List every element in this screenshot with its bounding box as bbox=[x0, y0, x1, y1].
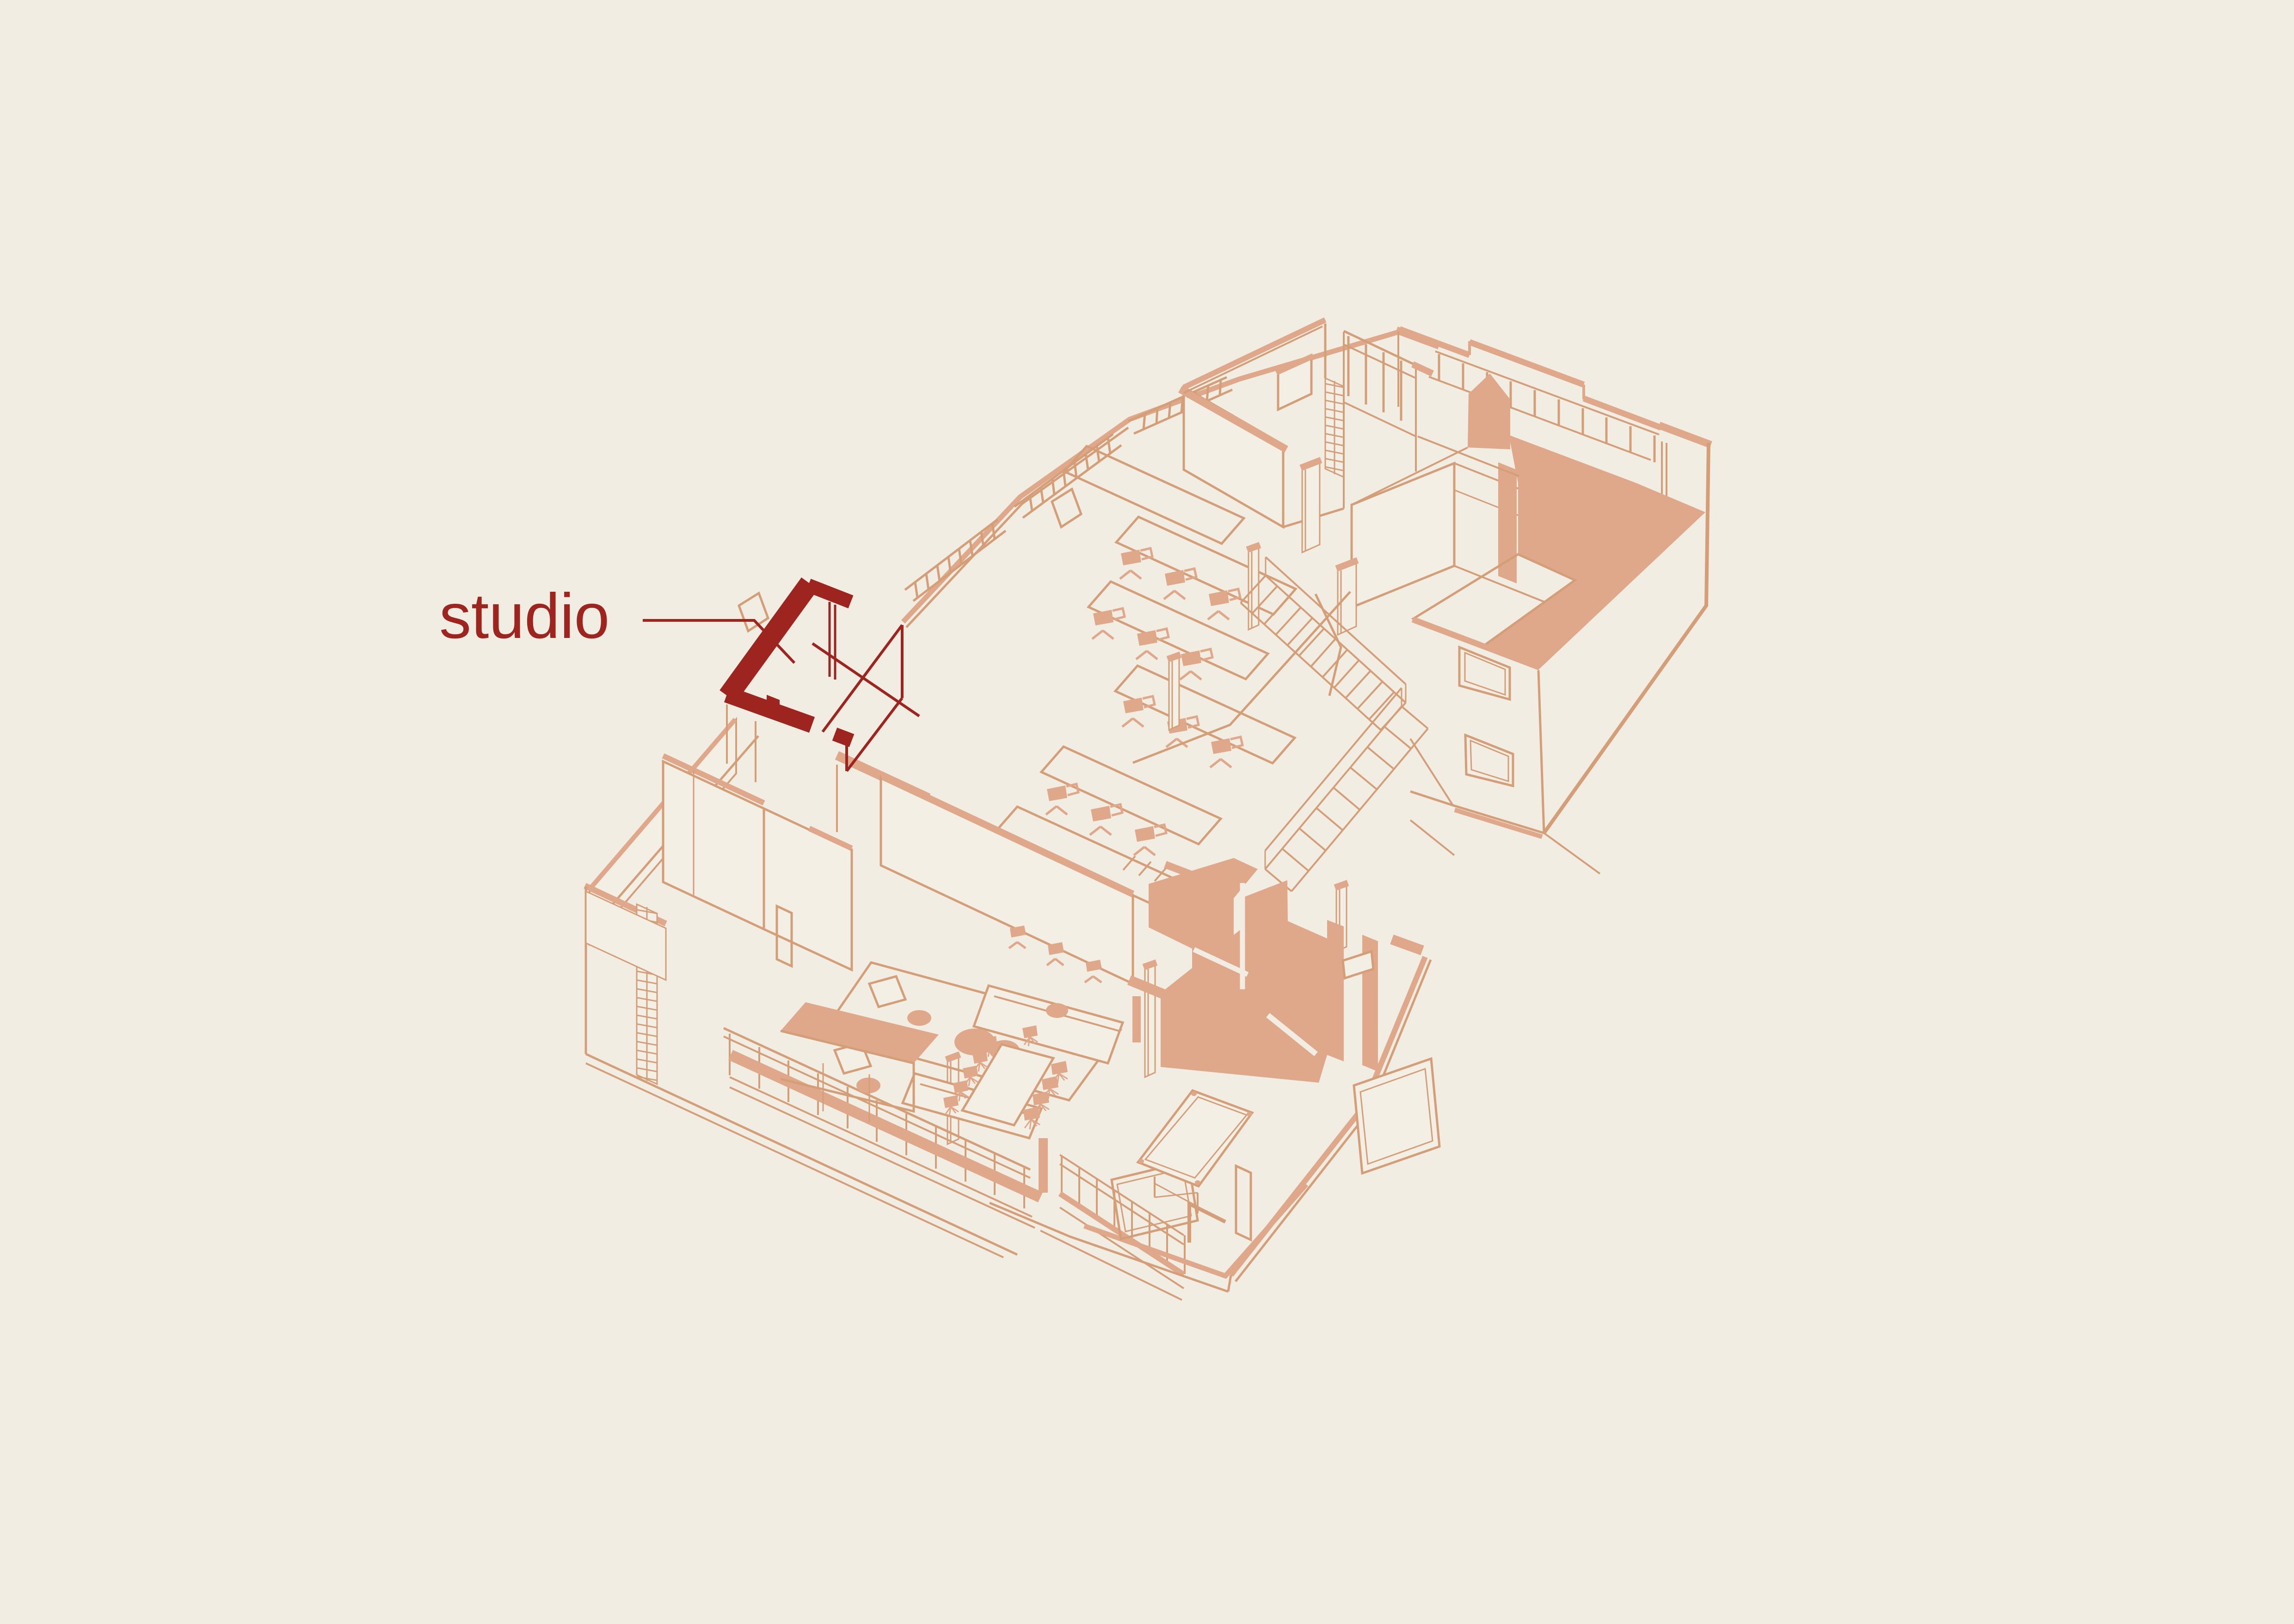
svg-text:studio: studio bbox=[439, 581, 609, 652]
